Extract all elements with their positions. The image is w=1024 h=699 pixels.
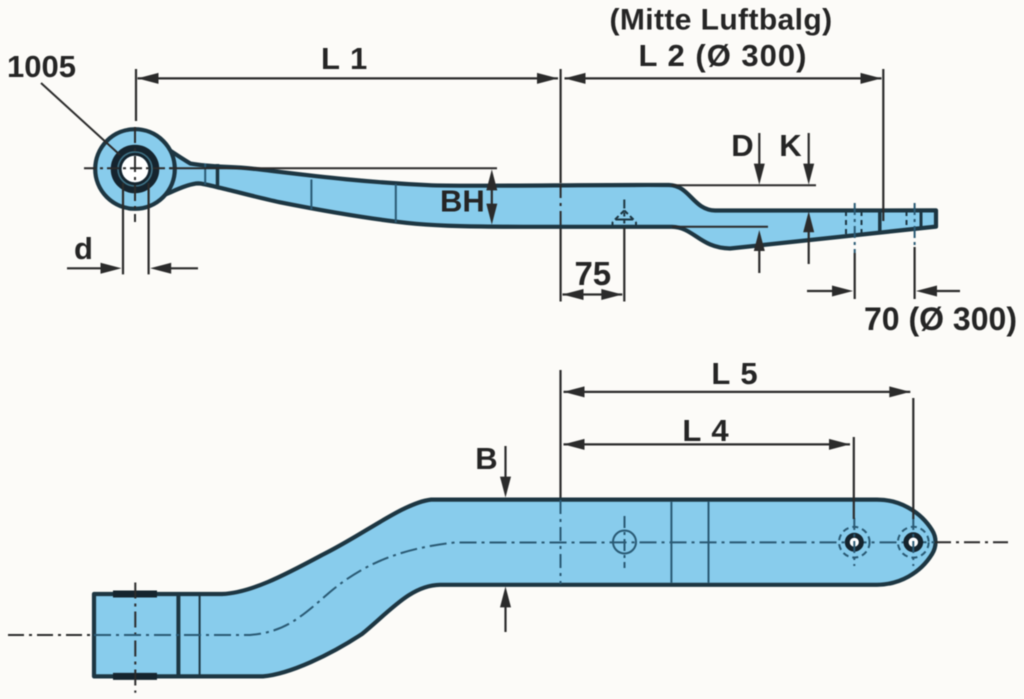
svg-text:K: K bbox=[779, 128, 802, 163]
svg-text:1005: 1005 bbox=[7, 49, 76, 84]
svg-text:d: d bbox=[74, 231, 93, 266]
svg-text:75: 75 bbox=[574, 255, 611, 292]
svg-text:B: B bbox=[475, 441, 497, 476]
svg-text:L 1: L 1 bbox=[321, 41, 368, 76]
svg-text:L 2 (Ø 300): L 2 (Ø 300) bbox=[639, 38, 808, 73]
svg-text:D: D bbox=[731, 128, 753, 163]
svg-text:70 (Ø 300): 70 (Ø 300) bbox=[864, 301, 1017, 337]
svg-text:BH: BH bbox=[440, 184, 485, 219]
svg-text:L 4: L 4 bbox=[682, 413, 729, 448]
svg-text:L 5: L 5 bbox=[711, 356, 758, 391]
svg-text:(Mitte Luftbalg): (Mitte Luftbalg) bbox=[609, 4, 832, 37]
